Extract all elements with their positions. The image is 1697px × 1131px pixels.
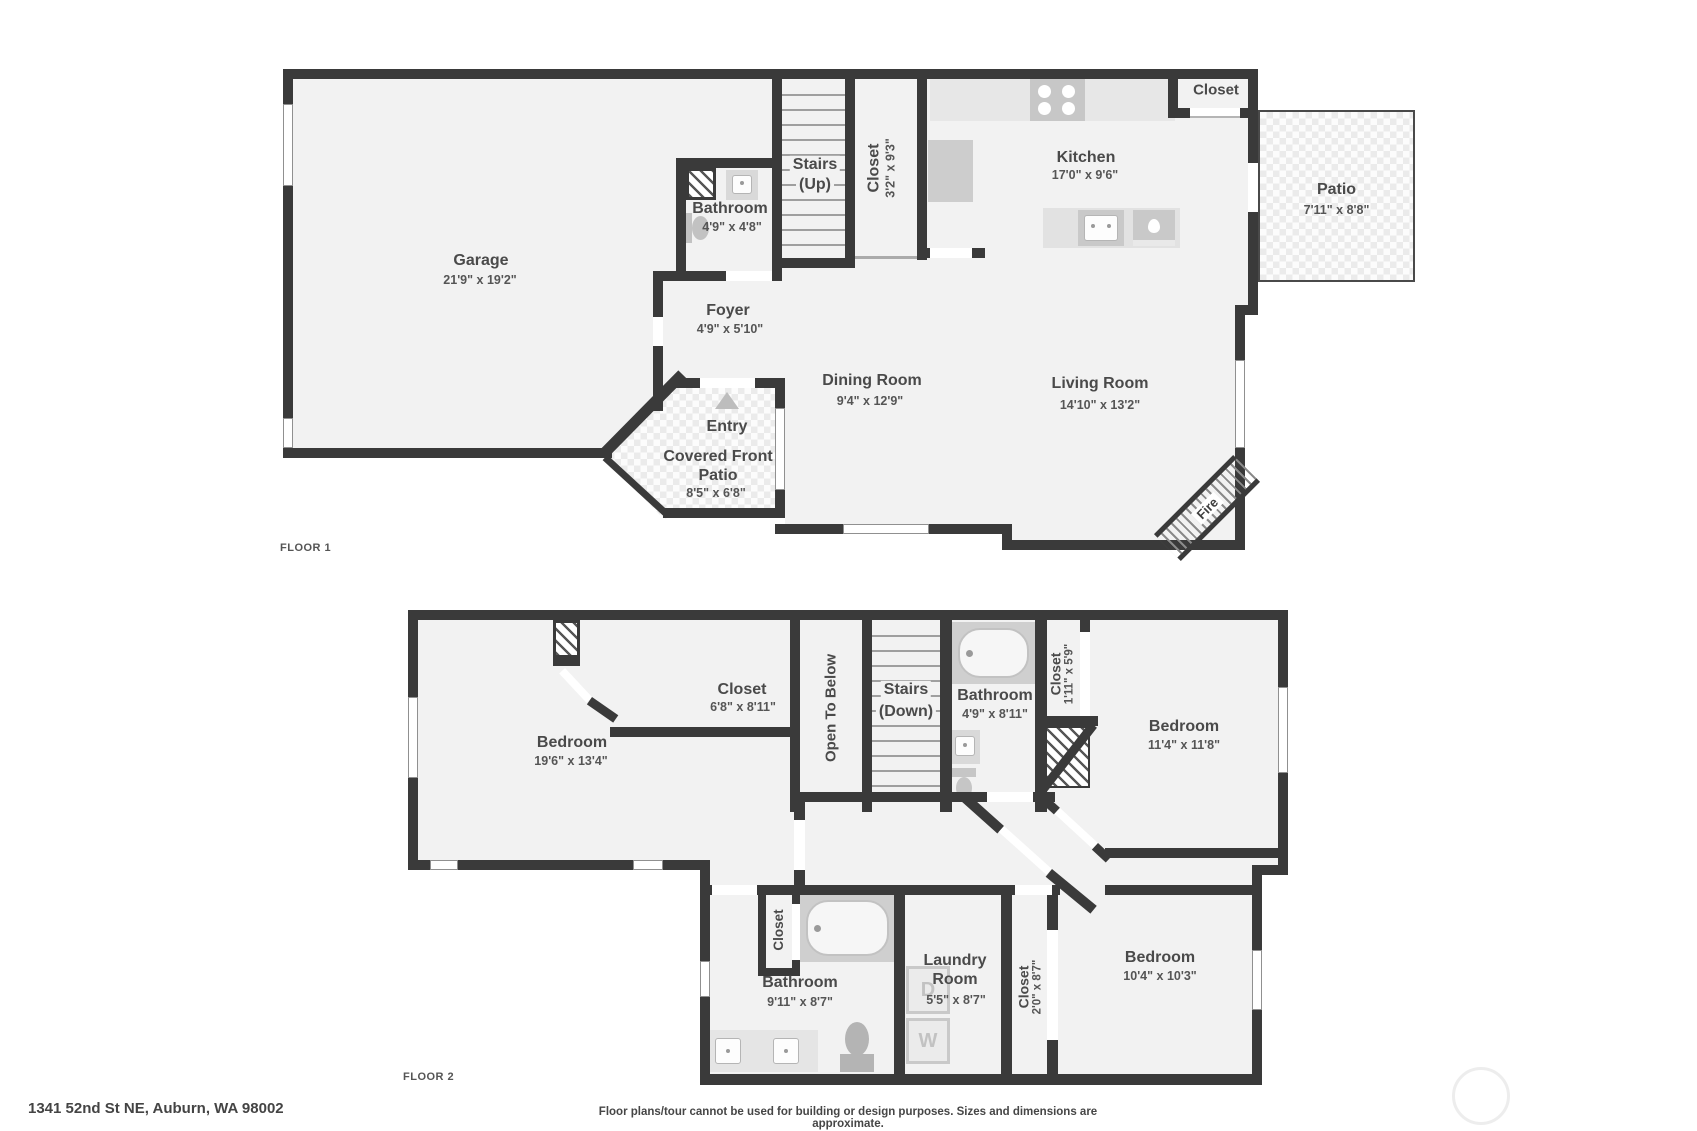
floor-2-caption: FLOOR 2 — [403, 1071, 454, 1083]
patio: Patio 7'11" x 8'8" — [1258, 110, 1415, 282]
door-opening — [726, 271, 772, 281]
chase-hatch — [553, 620, 580, 658]
plan-element: Closet — [1047, 644, 1063, 705]
wall — [940, 620, 952, 812]
door-opening — [1015, 885, 1052, 895]
entry-arrow-icon — [715, 392, 739, 409]
window — [843, 524, 929, 534]
plan-element: 3'2" x 9'3" — [884, 138, 898, 198]
kitchen-dims: 17'0" x 9'6" — [1052, 168, 1118, 182]
fixture-detail — [1107, 224, 1111, 228]
wall — [610, 727, 800, 737]
fixture-detail — [1038, 85, 1051, 98]
room-label-stairs-up: Stairs — [790, 156, 840, 174]
room-label-closet-bath: Closet — [771, 909, 787, 950]
tub-faucet — [966, 650, 973, 657]
window — [1278, 687, 1288, 773]
closet-top-dims: 6'8" x 8'11" — [710, 700, 776, 714]
stove — [1030, 79, 1085, 121]
floor-1-caption: FLOOR 1 — [280, 542, 331, 554]
wall — [663, 508, 785, 518]
wall — [553, 658, 580, 666]
floor-2-plan: D W — [408, 610, 1290, 1086]
door-opening — [792, 904, 800, 960]
shower — [686, 168, 716, 200]
window — [408, 697, 418, 778]
wall — [700, 1074, 1262, 1085]
window — [1252, 950, 1262, 1010]
wall — [676, 158, 782, 168]
fixture-detail — [963, 743, 967, 747]
room-label-stairs-closet: Closet 3'2" x 9'3" — [866, 138, 899, 198]
wall — [1105, 848, 1288, 858]
window — [430, 860, 458, 870]
fixture-detail — [1038, 102, 1051, 115]
plan-element: 2'0" x 8'7" — [1031, 960, 1044, 1015]
window — [1235, 360, 1245, 448]
double-vanity — [705, 1030, 818, 1072]
room-label-entry: Entry — [707, 418, 748, 436]
room-label-closet-top: Closet — [718, 681, 767, 699]
bedroom3-dims: 10'4" x 10'3" — [1123, 969, 1196, 983]
wall — [1040, 716, 1098, 726]
window — [633, 860, 663, 870]
wall — [917, 69, 927, 260]
room-label-kitchen: Kitchen — [1057, 149, 1116, 167]
patio-door-opening — [1248, 163, 1258, 212]
plan-element: W — [919, 1030, 938, 1053]
window — [283, 104, 293, 186]
wall — [790, 792, 952, 802]
patio-label: Patio — [1317, 181, 1356, 199]
fixture-detail — [1148, 219, 1160, 233]
plan-element — [1133, 240, 1175, 246]
fixture-detail — [1062, 102, 1075, 115]
garage-dims: 21'9" x 19'2" — [443, 273, 516, 287]
door-opening — [1080, 632, 1090, 718]
room-label-closet-small: Closet 1'11" x 5'9" — [1047, 644, 1076, 705]
room-label-kitchen-closet: Closet — [1193, 81, 1239, 98]
bathroom-sink — [950, 730, 980, 764]
door-opening — [712, 885, 757, 895]
wall — [1105, 885, 1252, 895]
plan-element: 1'11" x 5'9" — [1063, 644, 1076, 705]
dining-dims: 9'4" x 12'9" — [837, 394, 903, 408]
bathroom-up-dims: 4'9" x 8'11" — [962, 707, 1028, 721]
room-label-bedroom3: Bedroom — [1125, 949, 1195, 967]
foyer-dims: 4'9" x 5'10" — [697, 322, 763, 336]
wall — [894, 885, 905, 1084]
wall — [1002, 540, 1245, 550]
laundry-dims: 5'5" x 8'7" — [926, 993, 986, 1007]
floor-plan-page: Patio 7'11" x 8'8" — [0, 0, 1697, 1131]
wall — [408, 610, 1288, 620]
wall — [676, 158, 686, 281]
room-label-closet-hall: Closet 2'0" x 8'7" — [1015, 960, 1044, 1015]
door-opening — [794, 820, 805, 870]
wall — [862, 620, 872, 812]
fixture-detail — [1091, 224, 1095, 228]
room-label-covered-patio: Covered Front Patio — [652, 447, 784, 485]
property-address: 1341 52nd St NE, Auburn, WA 98002 — [28, 1100, 284, 1117]
open-to-below-label: Open To Below — [822, 654, 839, 762]
toilet — [840, 1054, 874, 1072]
room-label-living: Living Room — [1052, 375, 1149, 393]
toilet — [952, 768, 976, 777]
room-label-bedroom2: Bedroom — [1149, 718, 1219, 736]
room-label-dining: Dining Room — [822, 372, 922, 390]
room-label-foyer: Foyer — [706, 302, 750, 320]
room-label-bedroom1: Bedroom — [537, 734, 607, 752]
dishwasher — [1133, 210, 1175, 246]
wall — [1001, 885, 1012, 1084]
window — [700, 961, 710, 997]
window — [283, 418, 293, 448]
wall — [790, 620, 800, 812]
room-label-laundry: Laundry Room — [909, 951, 1001, 989]
wall — [772, 258, 855, 268]
door-opening — [1047, 930, 1058, 1040]
bedroom1-dims: 19'6" x 13'4" — [534, 754, 607, 768]
patio-dims: 7'11" x 8'8" — [1304, 203, 1370, 217]
stairs-down-direction: (Down) — [876, 703, 936, 721]
garage-door-opening — [653, 317, 663, 346]
fixture-detail — [726, 1049, 730, 1053]
plan-element: Closet — [1015, 960, 1031, 1015]
room-label-garage: Garage — [453, 252, 508, 270]
floor-1-plan: Patio 7'11" x 8'8" — [283, 69, 1416, 554]
bathroom-dims: 4'9" x 4'8" — [702, 220, 762, 234]
plan-element: Stairs — [881, 681, 931, 698]
refrigerator — [928, 140, 973, 202]
door-opening — [987, 792, 1033, 802]
bathroom-sink — [726, 170, 758, 200]
room-label-bathroom-up: Bathroom — [957, 687, 1033, 705]
living-dims: 14'10" x 13'2" — [1060, 398, 1140, 412]
room-label-bathroom-low: Bathroom — [762, 974, 838, 992]
wall — [758, 890, 766, 976]
door-opening — [930, 248, 972, 258]
tub-faucet — [814, 925, 821, 932]
plan-element: (Down) — [876, 703, 936, 720]
fixture-detail — [740, 181, 744, 185]
sink-basin — [1084, 215, 1118, 241]
toilet-bowl — [845, 1022, 869, 1056]
room-label-bathroom: Bathroom — [692, 200, 768, 218]
bathroom-low-dims: 9'11" x 8'7" — [767, 995, 833, 1009]
bedroom2-dims: 11'4" x 11'8" — [1148, 738, 1220, 752]
kitchen-sink — [1078, 210, 1124, 246]
front-door-opening — [700, 378, 755, 388]
wall — [772, 69, 782, 281]
wall — [283, 69, 1258, 79]
wall — [845, 69, 855, 268]
room-label-stairs-down: Stairs — [881, 681, 931, 699]
washer: W — [906, 1018, 950, 1064]
disclaimer-text: Floor plans/tour cannot be used for buil… — [583, 1106, 1113, 1130]
wall — [283, 448, 612, 458]
closet-opening — [855, 256, 917, 259]
stairs-up-direction: (Up) — [796, 176, 834, 194]
fixture-detail — [784, 1049, 788, 1053]
fireplace-label: Fire — [1190, 491, 1223, 524]
plan-element: Closet — [866, 138, 884, 198]
plan-element: Stairs — [790, 156, 840, 173]
closet-opening — [1190, 108, 1240, 118]
watermark-logo — [1452, 1067, 1510, 1125]
fixture-detail — [1062, 85, 1075, 98]
plan-element: (Up) — [796, 176, 834, 193]
covered-patio-dims: 8'5" x 6'8" — [686, 486, 746, 500]
